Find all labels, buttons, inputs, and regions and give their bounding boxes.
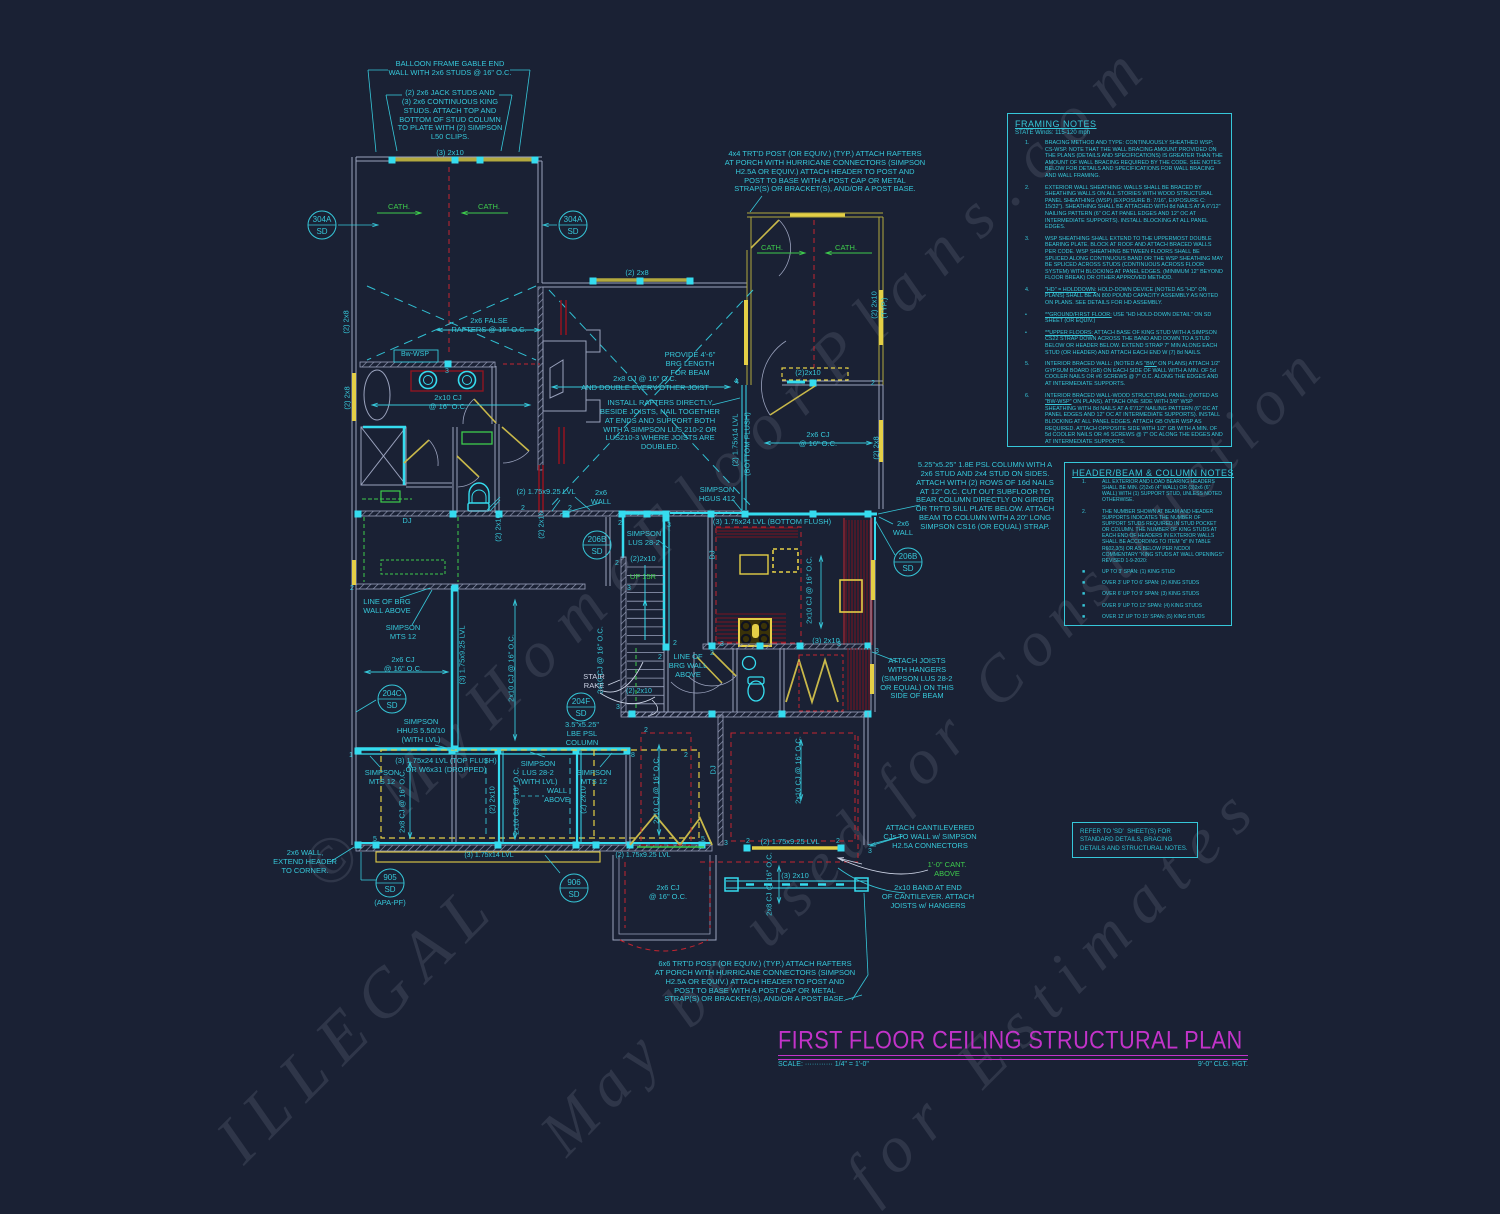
svg-text:SD: SD [386, 701, 397, 710]
svg-text:304A: 304A [564, 215, 583, 224]
svg-text:SD: SD [568, 890, 579, 899]
svg-text:204C: 204C [382, 689, 401, 698]
svg-text:SD: SD [902, 564, 913, 573]
svg-text:SD: SD [567, 227, 578, 236]
svg-text:SD: SD [591, 547, 602, 556]
svg-text:SD: SD [575, 709, 586, 718]
svg-text:906: 906 [567, 878, 581, 887]
svg-text:905: 905 [383, 873, 397, 882]
svg-text:304A: 304A [313, 215, 332, 224]
svg-text:206B: 206B [588, 535, 607, 544]
svg-text:SD: SD [384, 885, 395, 894]
svg-text:SD: SD [316, 227, 327, 236]
svg-text:206B: 206B [899, 552, 918, 561]
svg-text:204F: 204F [572, 697, 590, 706]
